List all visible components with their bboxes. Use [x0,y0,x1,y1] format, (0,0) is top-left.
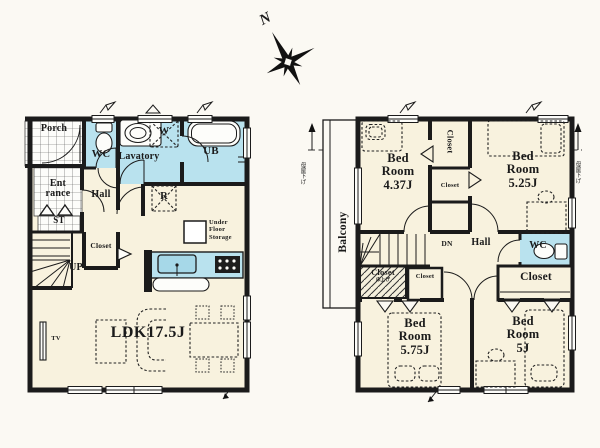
room-label-balcony: Balcony [337,192,349,272]
stairs-down-label: DN [435,240,459,248]
room-label-bedroom-nw: Bed Room 4.37J [368,152,428,192]
fixture-label-refrigerator: R [154,191,174,202]
room-label-closet-hatched: Closet [361,268,405,277]
room-label-lavatory: Lavatory [108,152,170,163]
room-label-bedroom-se: Bed Room 5J [493,315,553,355]
stairs-up-label: UP [63,263,89,274]
room-label-bedroom-sw: Bed Room 5.75J [385,317,445,357]
fixture-label-tv: TV [47,336,65,343]
note-eaves-right: 母屋下げ [574,152,580,192]
room-label-bedroom-ne: Bed Room 5.25J [491,150,555,190]
room-label-ldk: LDK17.5J [93,325,203,342]
room-label-hall-1f: Hall [83,190,119,201]
room-label-unit-bath: UB [196,146,226,158]
room-label-entrance: Ent rance [36,179,80,199]
note-eaves-left: 母屋下げ [299,153,305,193]
floorplan-page: N Porch WC Lavatory W UB Ent rance Hall … [0,0,600,448]
fixture-label-washing-machine: W [154,126,174,137]
room-label-closet-small: Closet [404,274,446,281]
room-label-hall-2f: Hall [465,238,497,249]
room-label-closet-tall: Closet [446,120,455,164]
room-label-closet-large: Closet [504,271,568,283]
room-label-shoe-storage: ST [47,216,71,226]
room-label-closet-1f: Closet [83,242,119,250]
label-under-floor-storage: Under Floor Storage [209,219,249,241]
room-label-wc-2f: WC [522,241,554,252]
note-closet-raised-floor: 床上げ [363,278,403,283]
room-label-closet-mid: Closet [432,183,468,190]
floorplan-drawing [0,0,600,448]
room-label-porch: Porch [29,124,79,135]
